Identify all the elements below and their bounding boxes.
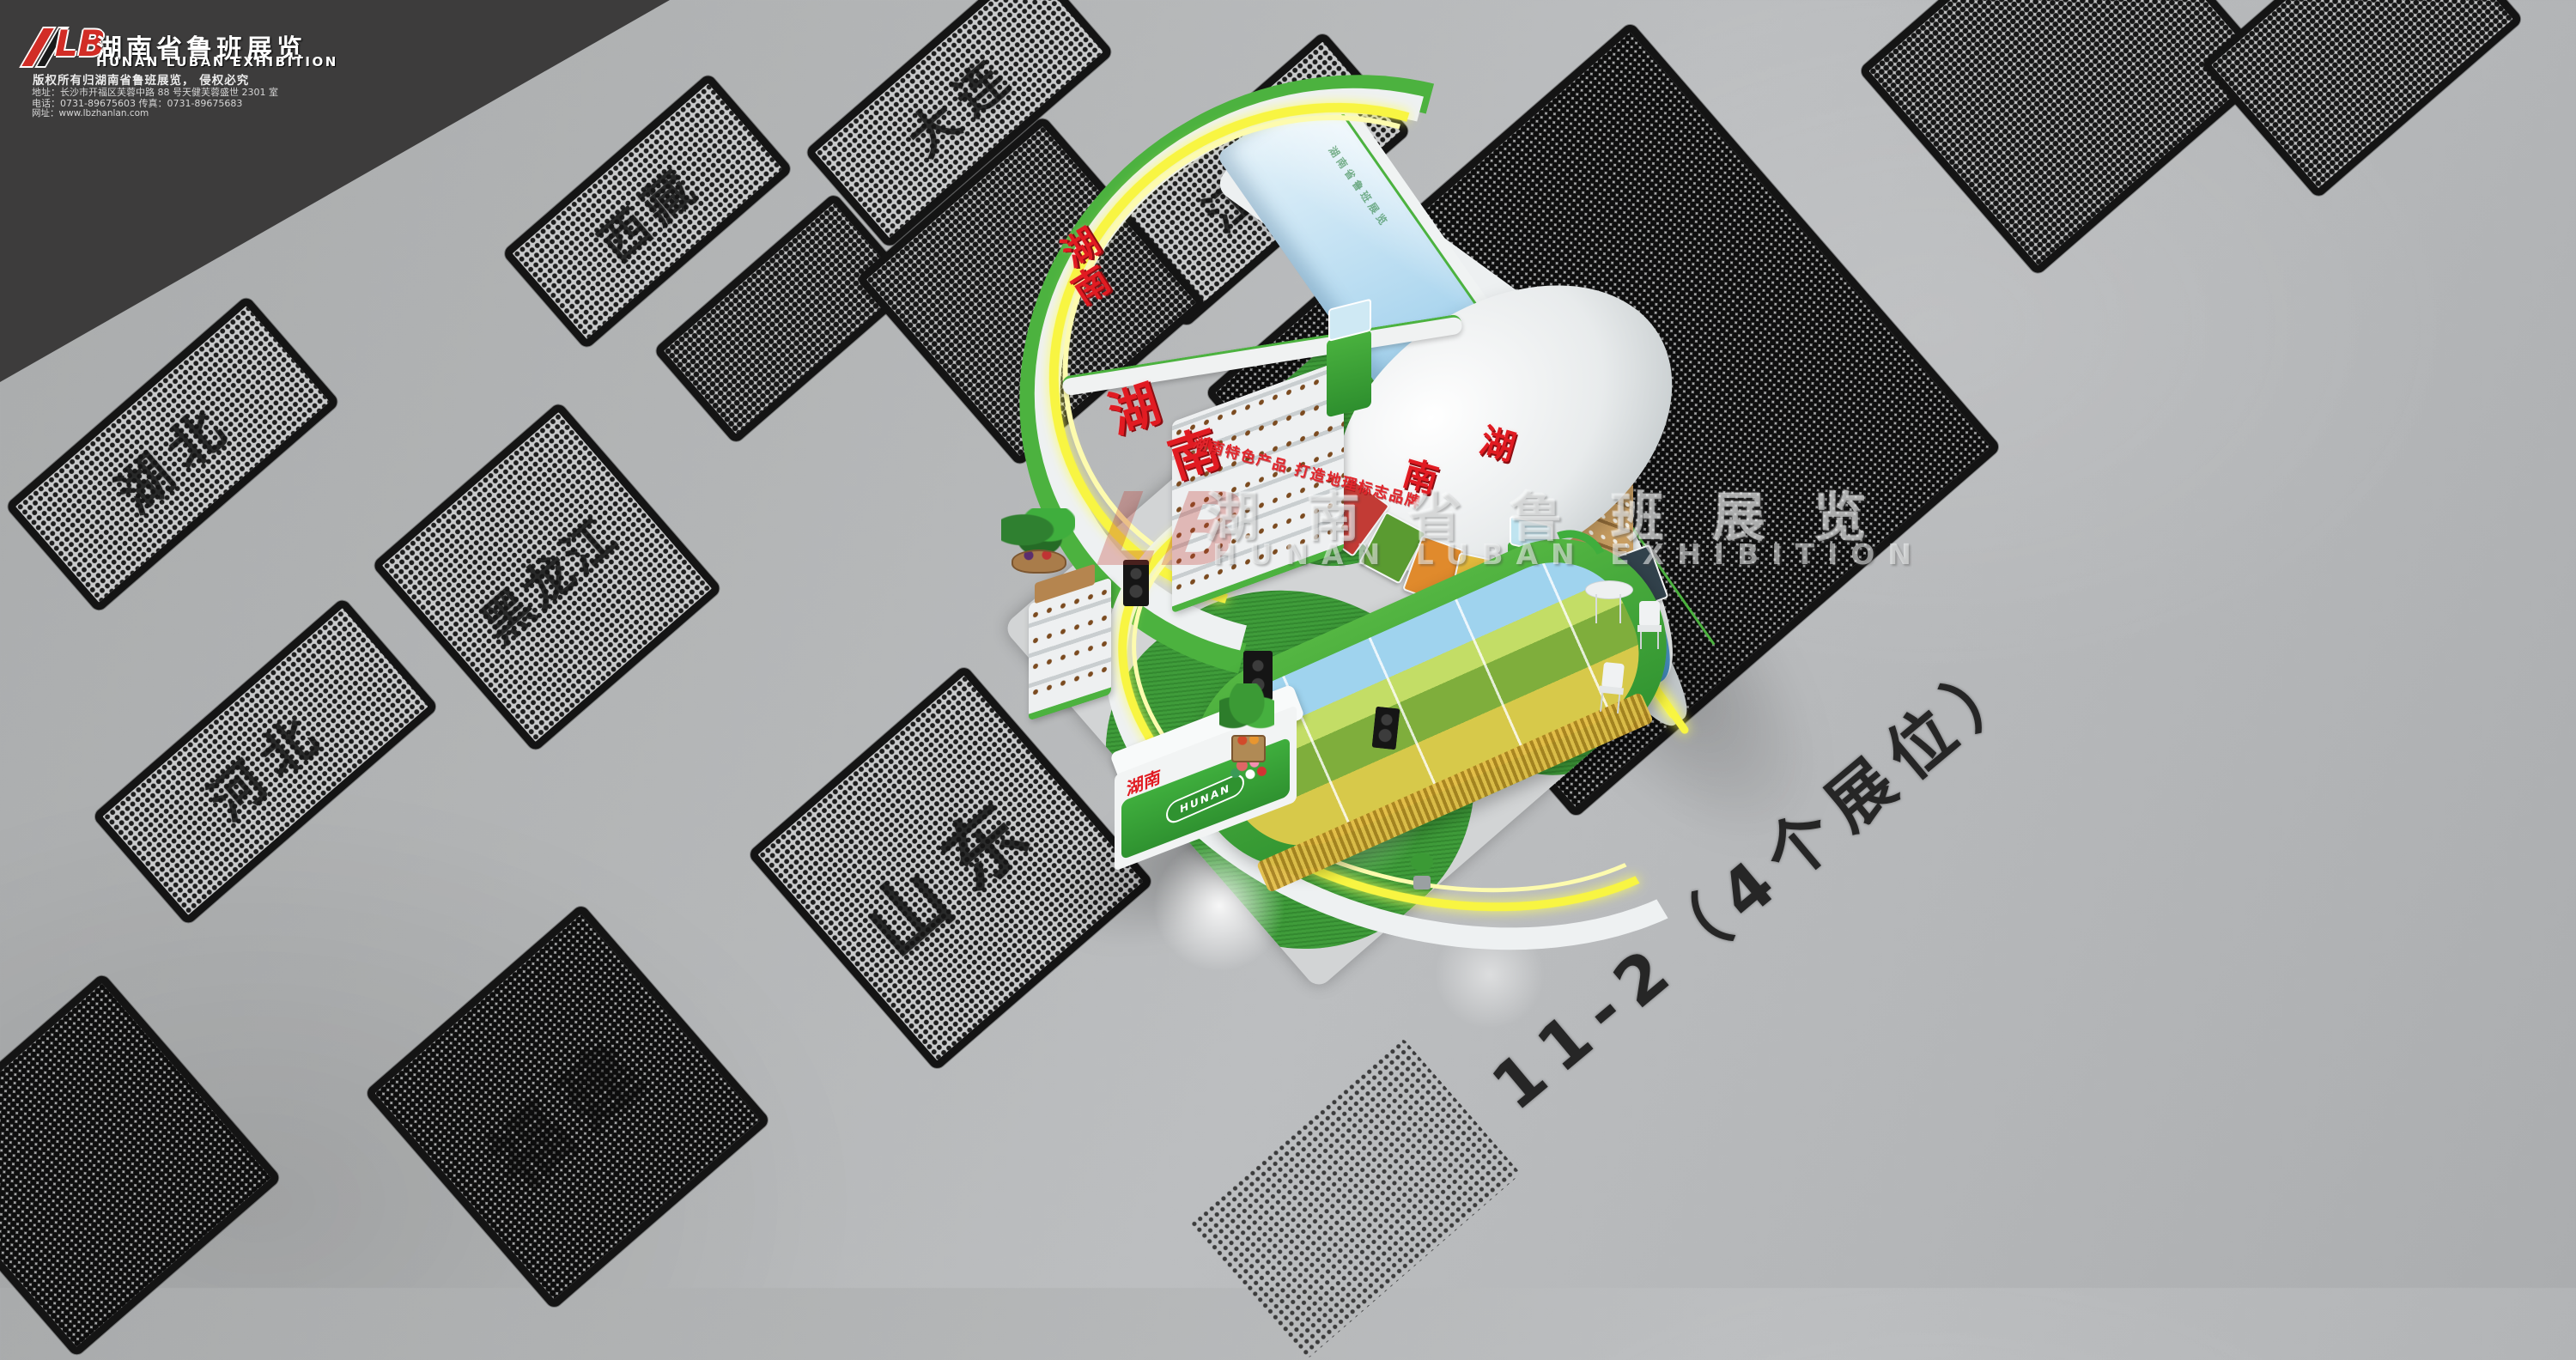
- kiosk-left: [1327, 330, 1371, 418]
- table-leg: [1619, 594, 1621, 623]
- chair-back: [1639, 601, 1660, 627]
- chair-leg: [1640, 632, 1642, 649]
- website-text: 网址：www.lbzhanlan.com: [32, 106, 149, 119]
- chair-leg: [1657, 632, 1659, 649]
- speaker-box: [1123, 560, 1149, 606]
- exhibition-render-page: { "header": { "logo_text": "LB", "compan…: [0, 0, 2576, 1288]
- small-plant: [1405, 848, 1439, 889]
- company-name-en: HUNAN LUBAN EXHIBITION: [96, 54, 338, 70]
- chair-leg: [1600, 693, 1603, 712]
- chair: [1596, 662, 1627, 714]
- chair-leg: [1617, 695, 1620, 713]
- speaker-box: [1372, 707, 1400, 750]
- lb-logo-icon: LB: [31, 24, 93, 69]
- plant-basket: [1001, 508, 1075, 574]
- plant-pot: [1413, 876, 1431, 889]
- table-leg: [1595, 594, 1597, 623]
- plant-leaves: [1219, 683, 1274, 737]
- booth-render: 湖南省鲁班展览 湖南 HUNAN: [0, 0, 2576, 1288]
- plant-leaves: [1405, 848, 1439, 876]
- chair-seat: [1637, 625, 1662, 632]
- chair: [1637, 601, 1662, 649]
- corner-plant: [1219, 683, 1274, 762]
- plant-pot: [1231, 735, 1266, 762]
- basket: [1012, 549, 1066, 574]
